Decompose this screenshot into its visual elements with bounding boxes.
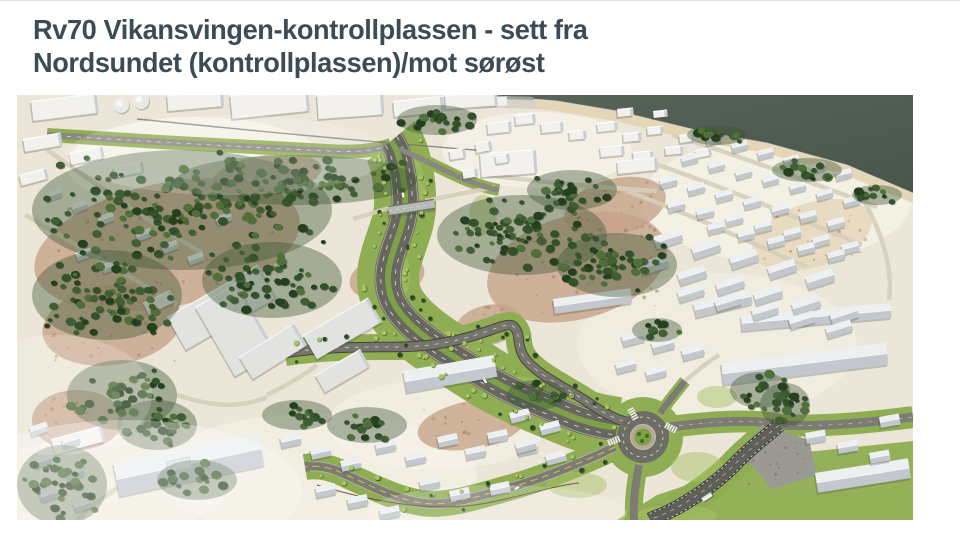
slide-title: Rv70 Vikansvingen-kontrollplassen - sett… (33, 13, 605, 79)
roundabout (617, 411, 669, 463)
aerial-render-svg (17, 95, 913, 520)
top-hairline (0, 0, 960, 1)
slide-title-line2: Nordsundet (kontrollplassen)/mot sørøst (33, 46, 587, 79)
aerial-visualization (17, 95, 913, 520)
slide-title-line1: Rv70 Vikansvingen-kontrollplassen - sett… (33, 13, 587, 46)
